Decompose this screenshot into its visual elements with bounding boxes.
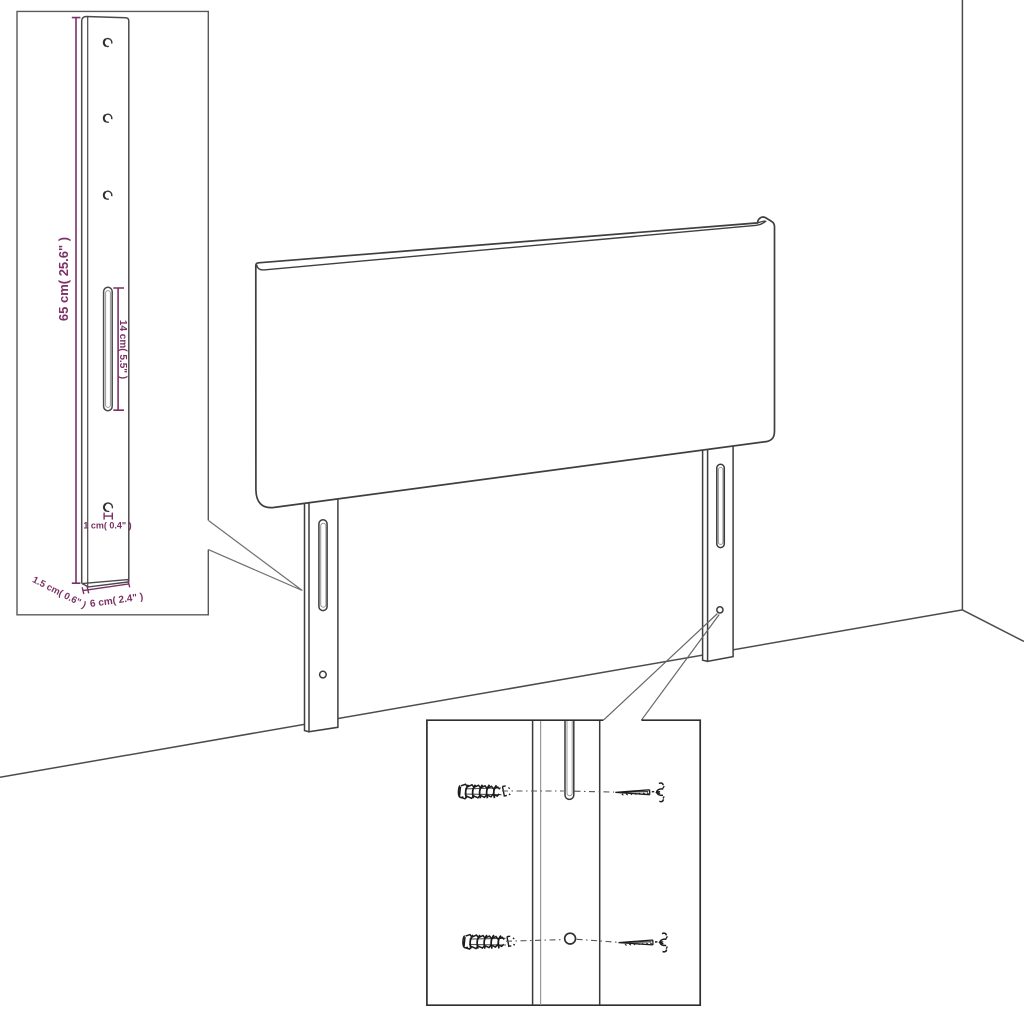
svg-text:65 cm( 25.6" ): 65 cm( 25.6" ) [56, 237, 71, 321]
svg-text:1 cm( 0.4" ): 1 cm( 0.4" ) [83, 521, 131, 531]
svg-text:14 cm( 5.5" ): 14 cm( 5.5" ) [117, 320, 128, 379]
